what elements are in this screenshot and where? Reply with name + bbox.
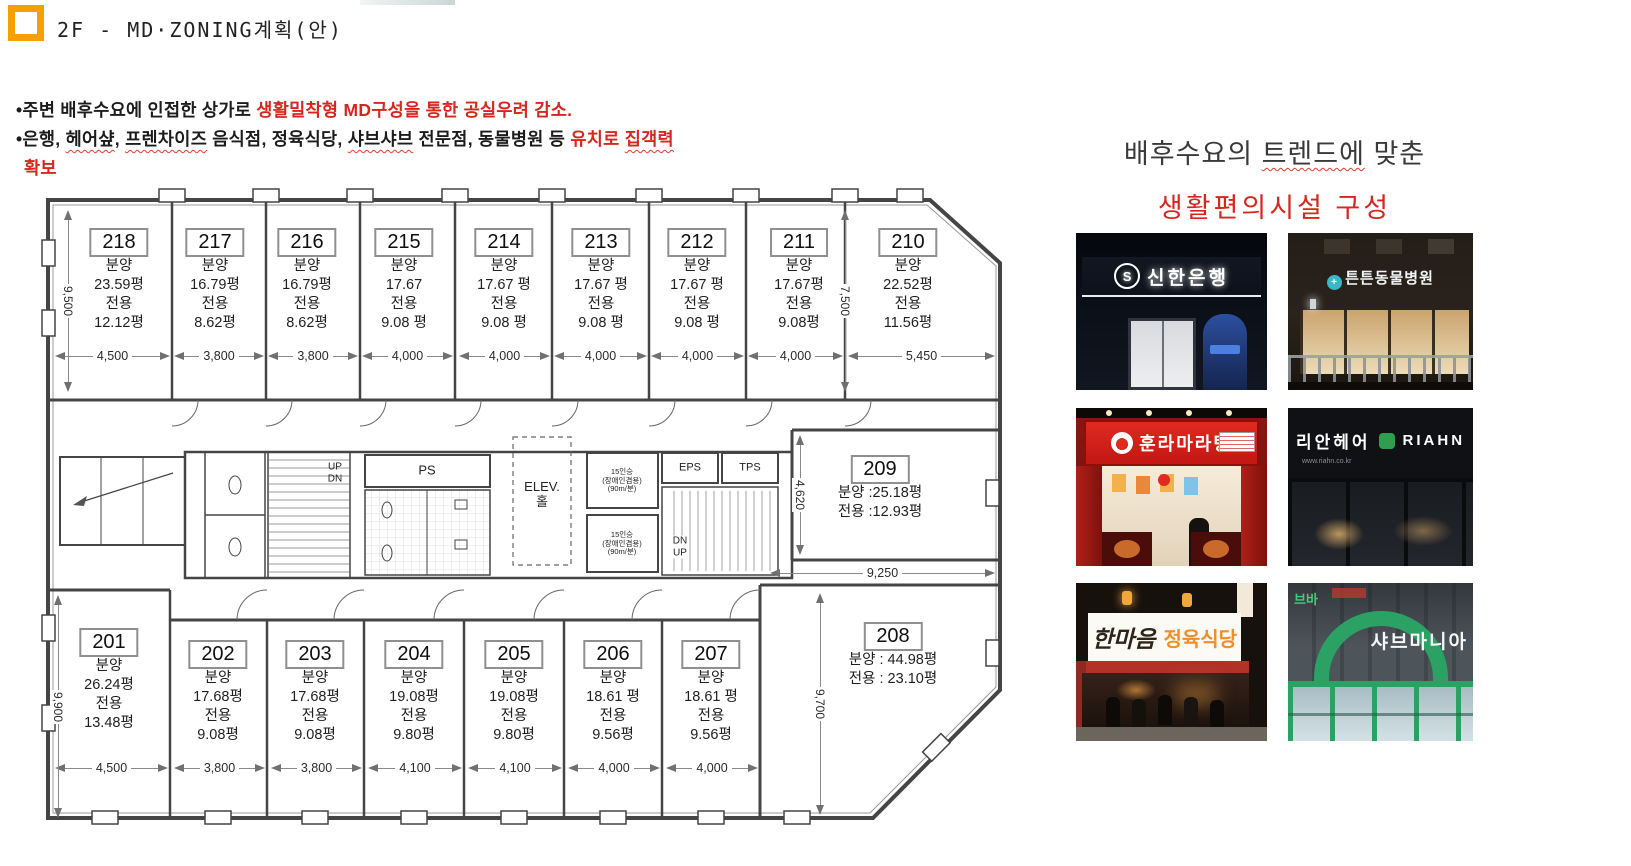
- dim-top-215: 4,000: [362, 349, 453, 363]
- unit-area-line: 분양: [698, 669, 725, 688]
- logo-orange-square: [8, 5, 44, 41]
- ps-label: PS: [418, 464, 435, 479]
- unit-area-line: 16.79평: [190, 276, 240, 295]
- dim-bottom-206: 4,000: [568, 761, 660, 775]
- right-pillar: [1241, 466, 1267, 566]
- bullet-2-text: 은행,: [22, 129, 65, 149]
- unit-area-line: 분양 :25.18평: [838, 484, 922, 503]
- bank-entrance: [1128, 318, 1196, 390]
- photo-shinhan-bank: S 신한은행: [1076, 233, 1267, 390]
- sign-base: [1082, 661, 1249, 673]
- dim-top-214: 4,000: [459, 349, 550, 363]
- dim-top-212: 4,000: [651, 349, 744, 363]
- photo-shabu: 브바 샤브마니아: [1288, 583, 1473, 741]
- unit-area-line: 9.56평: [690, 726, 732, 745]
- unit-area-line: 분양: [600, 669, 627, 688]
- dim-right-top: 7,500: [838, 210, 852, 392]
- unit-area-line: 분양: [684, 257, 711, 276]
- unit-area-line: 전용: [391, 295, 418, 314]
- unit-number: 218: [89, 228, 148, 257]
- shabu-windows: [1288, 681, 1473, 741]
- unit-area-line: 17.67 평: [670, 276, 724, 295]
- unit-area-line: 19.08평: [489, 688, 539, 707]
- unit-212: 212 분양 17.67 평 전용 9.08 평: [667, 228, 726, 333]
- unit-area-line: 9.80평: [493, 726, 535, 745]
- photo-butcher-restaurant: 한마음 정육식당: [1076, 583, 1267, 741]
- unit-area-line: 전용: [698, 707, 725, 726]
- unit-area-line: 12.12평: [94, 314, 144, 333]
- unit-number: 207: [681, 640, 740, 669]
- dim-top-216: 3,800: [268, 349, 358, 363]
- unit-area-line: 8.62평: [286, 314, 328, 333]
- unit-area-line: 전용: [684, 295, 711, 314]
- unit-area-line: 전용 : 23.10평: [849, 670, 937, 689]
- heading-text: 트렌드에: [1262, 139, 1365, 169]
- unit-area-line: 9.08 평: [674, 314, 720, 333]
- unit-number: 216: [277, 228, 336, 257]
- lift-speed: (90m/분): [602, 548, 642, 557]
- dim-top-217: 3,800: [174, 349, 264, 363]
- unit-area-line: 분양: [501, 669, 528, 688]
- unit-203: 203 분양 17.68평 전용 9.08평: [285, 640, 344, 745]
- interior-light: [1314, 518, 1364, 550]
- food-poster-left: [1102, 532, 1152, 566]
- interior-light: [1393, 516, 1453, 546]
- unit-area-line: 전용: [205, 707, 232, 726]
- top-strip: [360, 0, 455, 5]
- photo-animal-hospital: +튼튼동물병원: [1288, 233, 1473, 390]
- bullet-2-word: 샤브샤브: [348, 129, 414, 149]
- unit-number: 212: [667, 228, 726, 257]
- floor-plan: 218 분양 23.59평 전용 12.12평 217 분양 16.79평 전용…: [35, 185, 1020, 835]
- bullet-2-word: 프렌차이즈: [125, 129, 207, 149]
- dim-top-210: 5,450: [848, 349, 995, 363]
- dn-label: DN: [673, 536, 687, 548]
- elevator-hall-label: ELEV. 홀: [524, 480, 560, 510]
- unit-number: 205: [484, 640, 543, 669]
- ground: [1288, 382, 1473, 390]
- lift-speed: (90m/분): [602, 485, 642, 494]
- salon-storefront: [1288, 478, 1473, 566]
- dim-bottom-207: 4,000: [666, 761, 758, 775]
- dim-208-height: 9,700: [813, 593, 827, 815]
- dim-bottom-201: 4,500: [55, 761, 168, 775]
- bullet-1-text: 주변 배후수요에 인접한 상가로: [22, 100, 256, 120]
- side-sign: [1237, 583, 1253, 617]
- unit-area-line: 분양: [895, 257, 922, 276]
- unit-area-line: 18.61 평: [684, 688, 738, 707]
- dim-bottom-204: 4,100: [368, 761, 462, 775]
- unit-area-line: 9.08 평: [481, 314, 527, 333]
- unit-214: 214 분양 17.67 평 전용 9.08 평: [474, 228, 533, 333]
- unit-area-line: 전용 :12.93평: [838, 503, 922, 522]
- malatang-sign-text: 훈라마라탕: [1139, 430, 1232, 456]
- unit-area-line: 분양: [302, 669, 329, 688]
- balloon: [1158, 474, 1170, 486]
- unit-number: 210: [878, 228, 937, 257]
- building-windows: [1324, 239, 1350, 254]
- bullet-2: •은행, 헤어샾, 프렌차이즈 음식점, 정육식당, 샤브샤브 전문점, 동물병…: [16, 125, 816, 154]
- unit-area-line: 분양: [202, 257, 229, 276]
- unit-area-line: 전용: [294, 295, 321, 314]
- neighbor-sign-text: 브바: [1294, 589, 1318, 608]
- unit-number: 202: [188, 640, 247, 669]
- hospital-sign-text: 튼튼동물병원: [1345, 270, 1434, 287]
- unit-area-line: 13.48평: [84, 714, 134, 733]
- unit-area-line: 전용: [302, 707, 329, 726]
- unit-area-line: 17.67평: [774, 276, 824, 295]
- stair-2-label: DN UP: [673, 536, 687, 559]
- unit-208: 208 분양 : 44.98평 전용 : 23.10평: [849, 622, 937, 689]
- salon-sign-korean: 리안헤어: [1296, 428, 1371, 453]
- heading-text: 맞춘: [1365, 139, 1425, 169]
- unit-area-line: 분양: [588, 257, 615, 276]
- unit-area-line: 9.08평: [294, 726, 336, 745]
- unit-area-line: 17.67: [386, 276, 422, 295]
- unit-number: 204: [384, 640, 443, 669]
- dim-top-211: 4,000: [748, 349, 843, 363]
- unit-area-line: 17.67 평: [477, 276, 531, 295]
- dim-bottom-203: 3,800: [271, 761, 362, 775]
- unit-area-line: 23.59평: [94, 276, 144, 295]
- right-heading-1: 배후수요의 트렌드에 맞춘: [1076, 132, 1473, 171]
- butcher-sign-name: 한마음: [1092, 620, 1155, 654]
- bank-sign-text: 신한은행: [1147, 263, 1229, 290]
- unit-area-line: 전용: [401, 707, 428, 726]
- hall-label: 홀: [524, 495, 560, 510]
- up-label: UP: [673, 547, 687, 559]
- stair-label: UP DN: [328, 462, 342, 485]
- unit-area-line: 전용: [491, 295, 518, 314]
- unit-area-line: 분양: [491, 257, 518, 276]
- dim-209-height: 4,620: [793, 435, 807, 555]
- neighbor-sign: [1332, 588, 1366, 598]
- railing: [1288, 355, 1473, 382]
- unit-area-line: 11.56평: [884, 314, 933, 333]
- unit-number: 203: [285, 640, 344, 669]
- unit-215: 215 분양 17.67 전용 9.08 평: [374, 228, 433, 333]
- bullet-2-cont: 확보: [16, 154, 816, 183]
- unit-area-line: 분양: [96, 657, 123, 676]
- interior-light: [1116, 679, 1156, 701]
- unit-number: 217: [185, 228, 244, 257]
- unit-number: 209: [850, 455, 909, 484]
- people-silhouettes: [1106, 697, 1120, 727]
- bank-atm-sign: [1210, 345, 1240, 354]
- unit-area-line: 26.24평: [84, 676, 134, 695]
- bullet-2-word: 헤어샾: [66, 129, 115, 149]
- dim-left-top: 9,500: [61, 210, 75, 392]
- dim-bottom-202: 3,800: [174, 761, 265, 775]
- bullet-2-text: 전문점, 동물병원 등: [413, 129, 570, 149]
- dim-208-width: 9,250: [770, 566, 995, 580]
- photo-hair-salon: 리안헤어 RIAHN www.riahn.co.kr: [1288, 408, 1473, 566]
- unit-area-line: 9.08평: [778, 314, 820, 333]
- unit-area-line: 전용: [501, 707, 528, 726]
- unit-area-line: 전용: [96, 695, 123, 714]
- unit-area-line: 분양: [401, 669, 428, 688]
- unit-206: 206 분양 18.61 평 전용 9.56평: [583, 640, 642, 745]
- unit-area-line: 9.80평: [393, 726, 435, 745]
- info-board: [1219, 432, 1255, 452]
- unit-210: 210 분양 22.52평 전용 11.56평: [878, 228, 937, 333]
- unit-205: 205 분양 19.08평 전용 9.80평: [484, 640, 543, 745]
- butcher-sign-type: 정육식당: [1163, 623, 1237, 652]
- bank-sign: S 신한은행: [1082, 257, 1261, 297]
- unit-number: 211: [770, 228, 828, 257]
- dim-top-213: 4,000: [554, 349, 647, 363]
- photo-malatang: 훈라마라탕: [1076, 408, 1267, 566]
- wall-posters: [1112, 474, 1126, 492]
- sign-lights: [1106, 410, 1112, 416]
- unit-area-line: 9.56평: [592, 726, 634, 745]
- unit-area-line: 분양: [205, 669, 232, 688]
- unit-218: 218 분양 23.59평 전용 12.12평: [89, 228, 148, 333]
- hospital-sign: +튼튼동물병원: [1288, 267, 1473, 290]
- unit-211: 211 분양 17.67평 전용 9.08평: [770, 228, 828, 333]
- unit-number: 215: [374, 228, 433, 257]
- shinhan-logo-icon: S: [1114, 263, 1140, 289]
- lift-2-label: 15인승 (장애인겸용) (90m/분): [602, 531, 642, 557]
- unit-213: 213 분양 17.67 평 전용 9.08 평: [571, 228, 630, 333]
- wall-lamp: [1310, 299, 1316, 309]
- unit-area-line: 분양: [106, 257, 133, 276]
- butcher-sign: 한마음 정육식당: [1088, 613, 1241, 661]
- bullet-1-highlight: 생활밀착형 MD구성을 통한 공실우려 감소.: [256, 100, 572, 120]
- tps-label: TPS: [739, 462, 760, 475]
- unit-area-line: 전용: [588, 295, 615, 314]
- lanterns: [1122, 591, 1132, 605]
- unit-area-line: 18.61 평: [586, 688, 640, 707]
- unit-area-line: 분양: [786, 257, 813, 276]
- shabu-sign-text: 샤브마니아: [1371, 627, 1468, 654]
- unit-207: 207 분양 18.61 평 전용 9.56평: [681, 640, 740, 745]
- unit-number: 201: [79, 628, 138, 657]
- salon-url: www.riahn.co.kr: [1302, 458, 1351, 465]
- unit-number: 214: [474, 228, 533, 257]
- unit-209: 209 분양 :25.18평 전용 :12.93평: [838, 455, 922, 522]
- unit-area-line: 전용: [600, 707, 627, 726]
- lift-1-label: 15인승 (장애인겸용) (90m/분): [602, 468, 642, 494]
- unit-number: 208: [863, 622, 922, 651]
- awning: [1076, 408, 1267, 418]
- right-heading-2: 생활편의시설 구성: [1076, 186, 1473, 225]
- salon-sign: 리안헤어 RIAHN: [1288, 428, 1473, 453]
- elev-label: ELEV.: [524, 480, 560, 495]
- unit-area-line: 분양: [391, 257, 418, 276]
- heading-text: 배후수요의: [1124, 139, 1262, 169]
- unit-area-line: 9.08 평: [578, 314, 624, 333]
- unit-217: 217 분양 16.79평 전용 8.62평: [185, 228, 244, 333]
- unit-area-line: 17.68평: [290, 688, 340, 707]
- unit-number: 206: [583, 640, 642, 669]
- unit-area-line: 17.67 평: [574, 276, 628, 295]
- unit-201: 201 분양 26.24평 전용 13.48평: [79, 628, 138, 733]
- bullet-2-highlight: 확보: [24, 158, 57, 178]
- unit-area-line: 전용: [202, 295, 229, 314]
- dim-left-bottom: 9,900: [51, 595, 65, 818]
- unit-area-line: 분양 : 44.98평: [849, 651, 937, 670]
- unit-area-line: 17.68평: [193, 688, 243, 707]
- bullet-2-highlight: 집객력: [625, 129, 674, 149]
- bullet-2-highlight: 유치로: [570, 129, 624, 149]
- page-title: 2F - MD·ZONING계획(안): [57, 14, 343, 43]
- unit-area-line: 전용: [106, 295, 133, 314]
- up-label: UP: [328, 462, 342, 474]
- bullet-1: •주변 배후수요에 인접한 상가로 생활밀착형 MD구성을 통한 공실우려 감소…: [16, 96, 816, 125]
- salon-logo-icon: [1379, 433, 1395, 449]
- salon-sign-english: RIAHN: [1403, 432, 1466, 449]
- unit-area-line: 22.52평: [883, 276, 933, 295]
- mascot-icon: [1111, 432, 1133, 454]
- unit-area-line: 전용: [895, 295, 922, 314]
- bullet-2-text: 음식점, 정육식당,: [207, 129, 348, 149]
- unit-area-line: 8.62평: [194, 314, 236, 333]
- food-poster-right: [1191, 532, 1241, 566]
- unit-number: 213: [571, 228, 630, 257]
- unit-202: 202 분양 17.68평 전용 9.08평: [188, 640, 247, 745]
- unit-area-line: 16.79평: [282, 276, 332, 295]
- unit-area-line: 전용: [786, 295, 813, 314]
- unit-area-line: 19.08평: [389, 688, 439, 707]
- hospital-logo-icon: +: [1327, 275, 1342, 290]
- dim-bottom-205: 4,100: [468, 761, 562, 775]
- unit-area-line: 9.08 평: [381, 314, 427, 333]
- unit-area-line: 9.08평: [197, 726, 239, 745]
- eps-label: EPS: [679, 462, 701, 475]
- unit-204: 204 분양 19.08평 전용 9.80평: [384, 640, 443, 745]
- dn-label: DN: [328, 473, 342, 485]
- unit-216: 216 분양 16.79평 전용 8.62평: [277, 228, 336, 333]
- ground: [1076, 727, 1267, 741]
- unit-area-line: 분양: [294, 257, 321, 276]
- bullet-list: •주변 배후수요에 인접한 상가로 생활밀착형 MD구성을 통한 공실우려 감소…: [16, 96, 816, 183]
- left-pillar: [1076, 466, 1102, 566]
- bullet-2-text: ,: [115, 129, 125, 149]
